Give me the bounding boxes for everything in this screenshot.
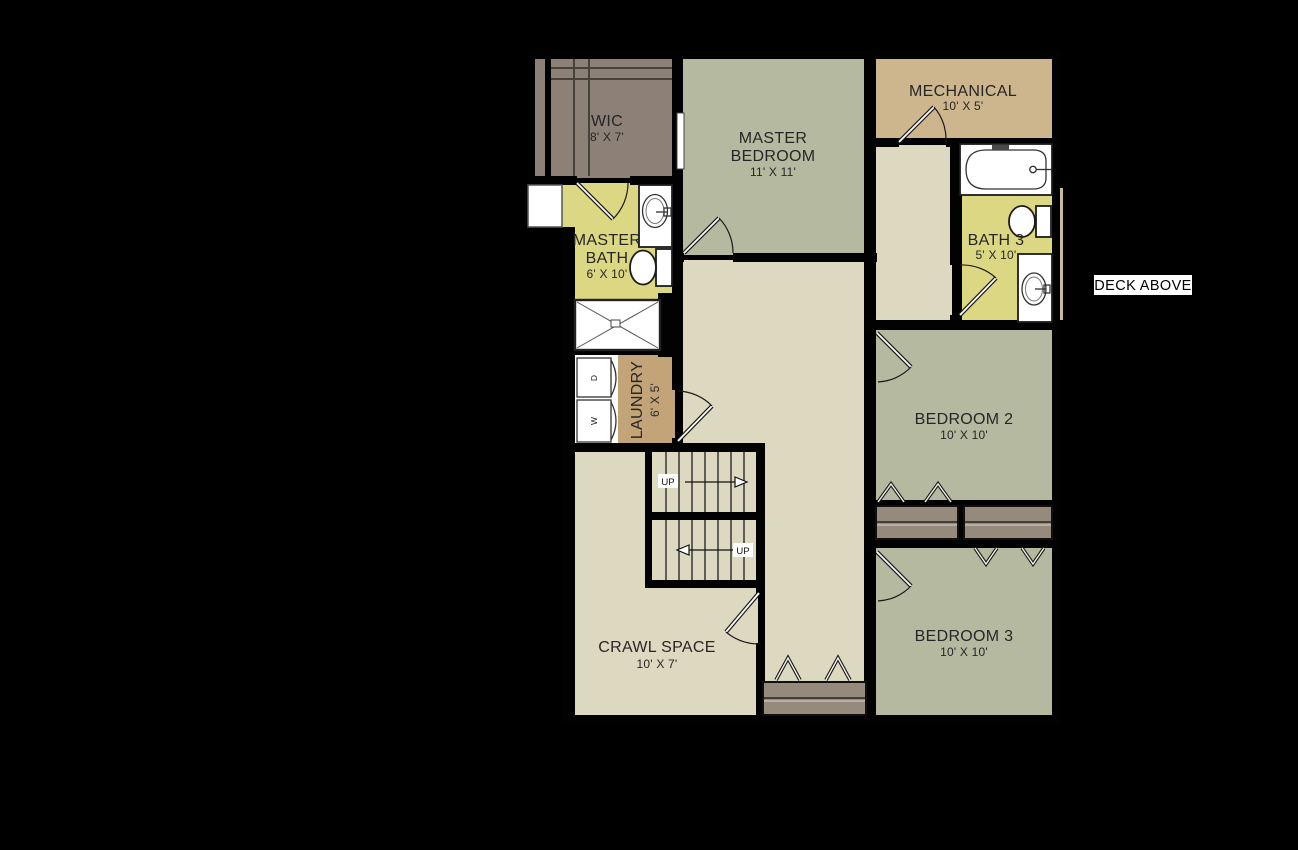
deck-label: DECK ABOVE <box>1094 278 1191 294</box>
master-bath-dims: 6' X 10' <box>587 267 628 281</box>
master-bath-label-2: BATH <box>586 250 629 267</box>
sink-icon <box>639 185 672 247</box>
closet-hall <box>763 682 866 715</box>
closet-bedroom3 <box>964 506 1052 539</box>
up-label-upper: UP <box>661 477 674 488</box>
master-bedroom-label-2: BEDROOM <box>731 148 816 165</box>
room-crawl-space-left <box>572 443 647 717</box>
room-landing <box>876 145 952 322</box>
mechanical-label: MECHANICAL <box>909 83 1017 100</box>
bedroom3-label: BEDROOM 3 <box>915 628 1014 645</box>
shower-icon <box>575 300 660 350</box>
washer-label: W <box>589 417 599 425</box>
laundry-machines <box>577 358 616 442</box>
deck-above-callout: DECK ABOVE <box>1094 275 1192 295</box>
hall-upper <box>683 260 864 445</box>
closet-bedroom2 <box>876 506 958 539</box>
room-laundry <box>618 355 675 445</box>
bedroom2-label: BEDROOM 2 <box>915 411 1014 428</box>
floor-plan-svg: UP UP <box>0 0 1298 850</box>
window-icon <box>677 113 684 169</box>
sink-icon <box>1018 254 1052 322</box>
laundry-label: LAUNDRY <box>629 361 646 439</box>
mechanical-dims: 10' X 5' <box>943 99 984 113</box>
master-bath-label-1: MASTER <box>573 232 641 249</box>
bedroom3-dims: 10' X 10' <box>940 645 988 659</box>
wic-dims: 8' X 7' <box>590 130 624 144</box>
master-bedroom-label-1: MASTER <box>739 130 807 147</box>
laundry-dims: 6' X 5' <box>648 383 662 417</box>
toilet-icon <box>630 249 672 286</box>
bath3-dims: 5' X 10' <box>976 248 1017 262</box>
bath3-label: BATH 3 <box>968 232 1025 249</box>
dryer-label: D <box>589 375 599 381</box>
bathtub-icon <box>960 144 1052 195</box>
crawl-space-label: CRAWL SPACE <box>598 639 715 656</box>
master-bedroom-dims: 11' X 11' <box>750 165 796 179</box>
up-label-lower: UP <box>736 546 749 557</box>
linen-niche <box>528 185 562 227</box>
wic-label: WIC <box>591 113 623 130</box>
bedroom2-dims: 10' X 10' <box>940 428 988 442</box>
crawl-space-dims: 10' X 7' <box>637 657 678 671</box>
tub-handle <box>992 145 1009 150</box>
